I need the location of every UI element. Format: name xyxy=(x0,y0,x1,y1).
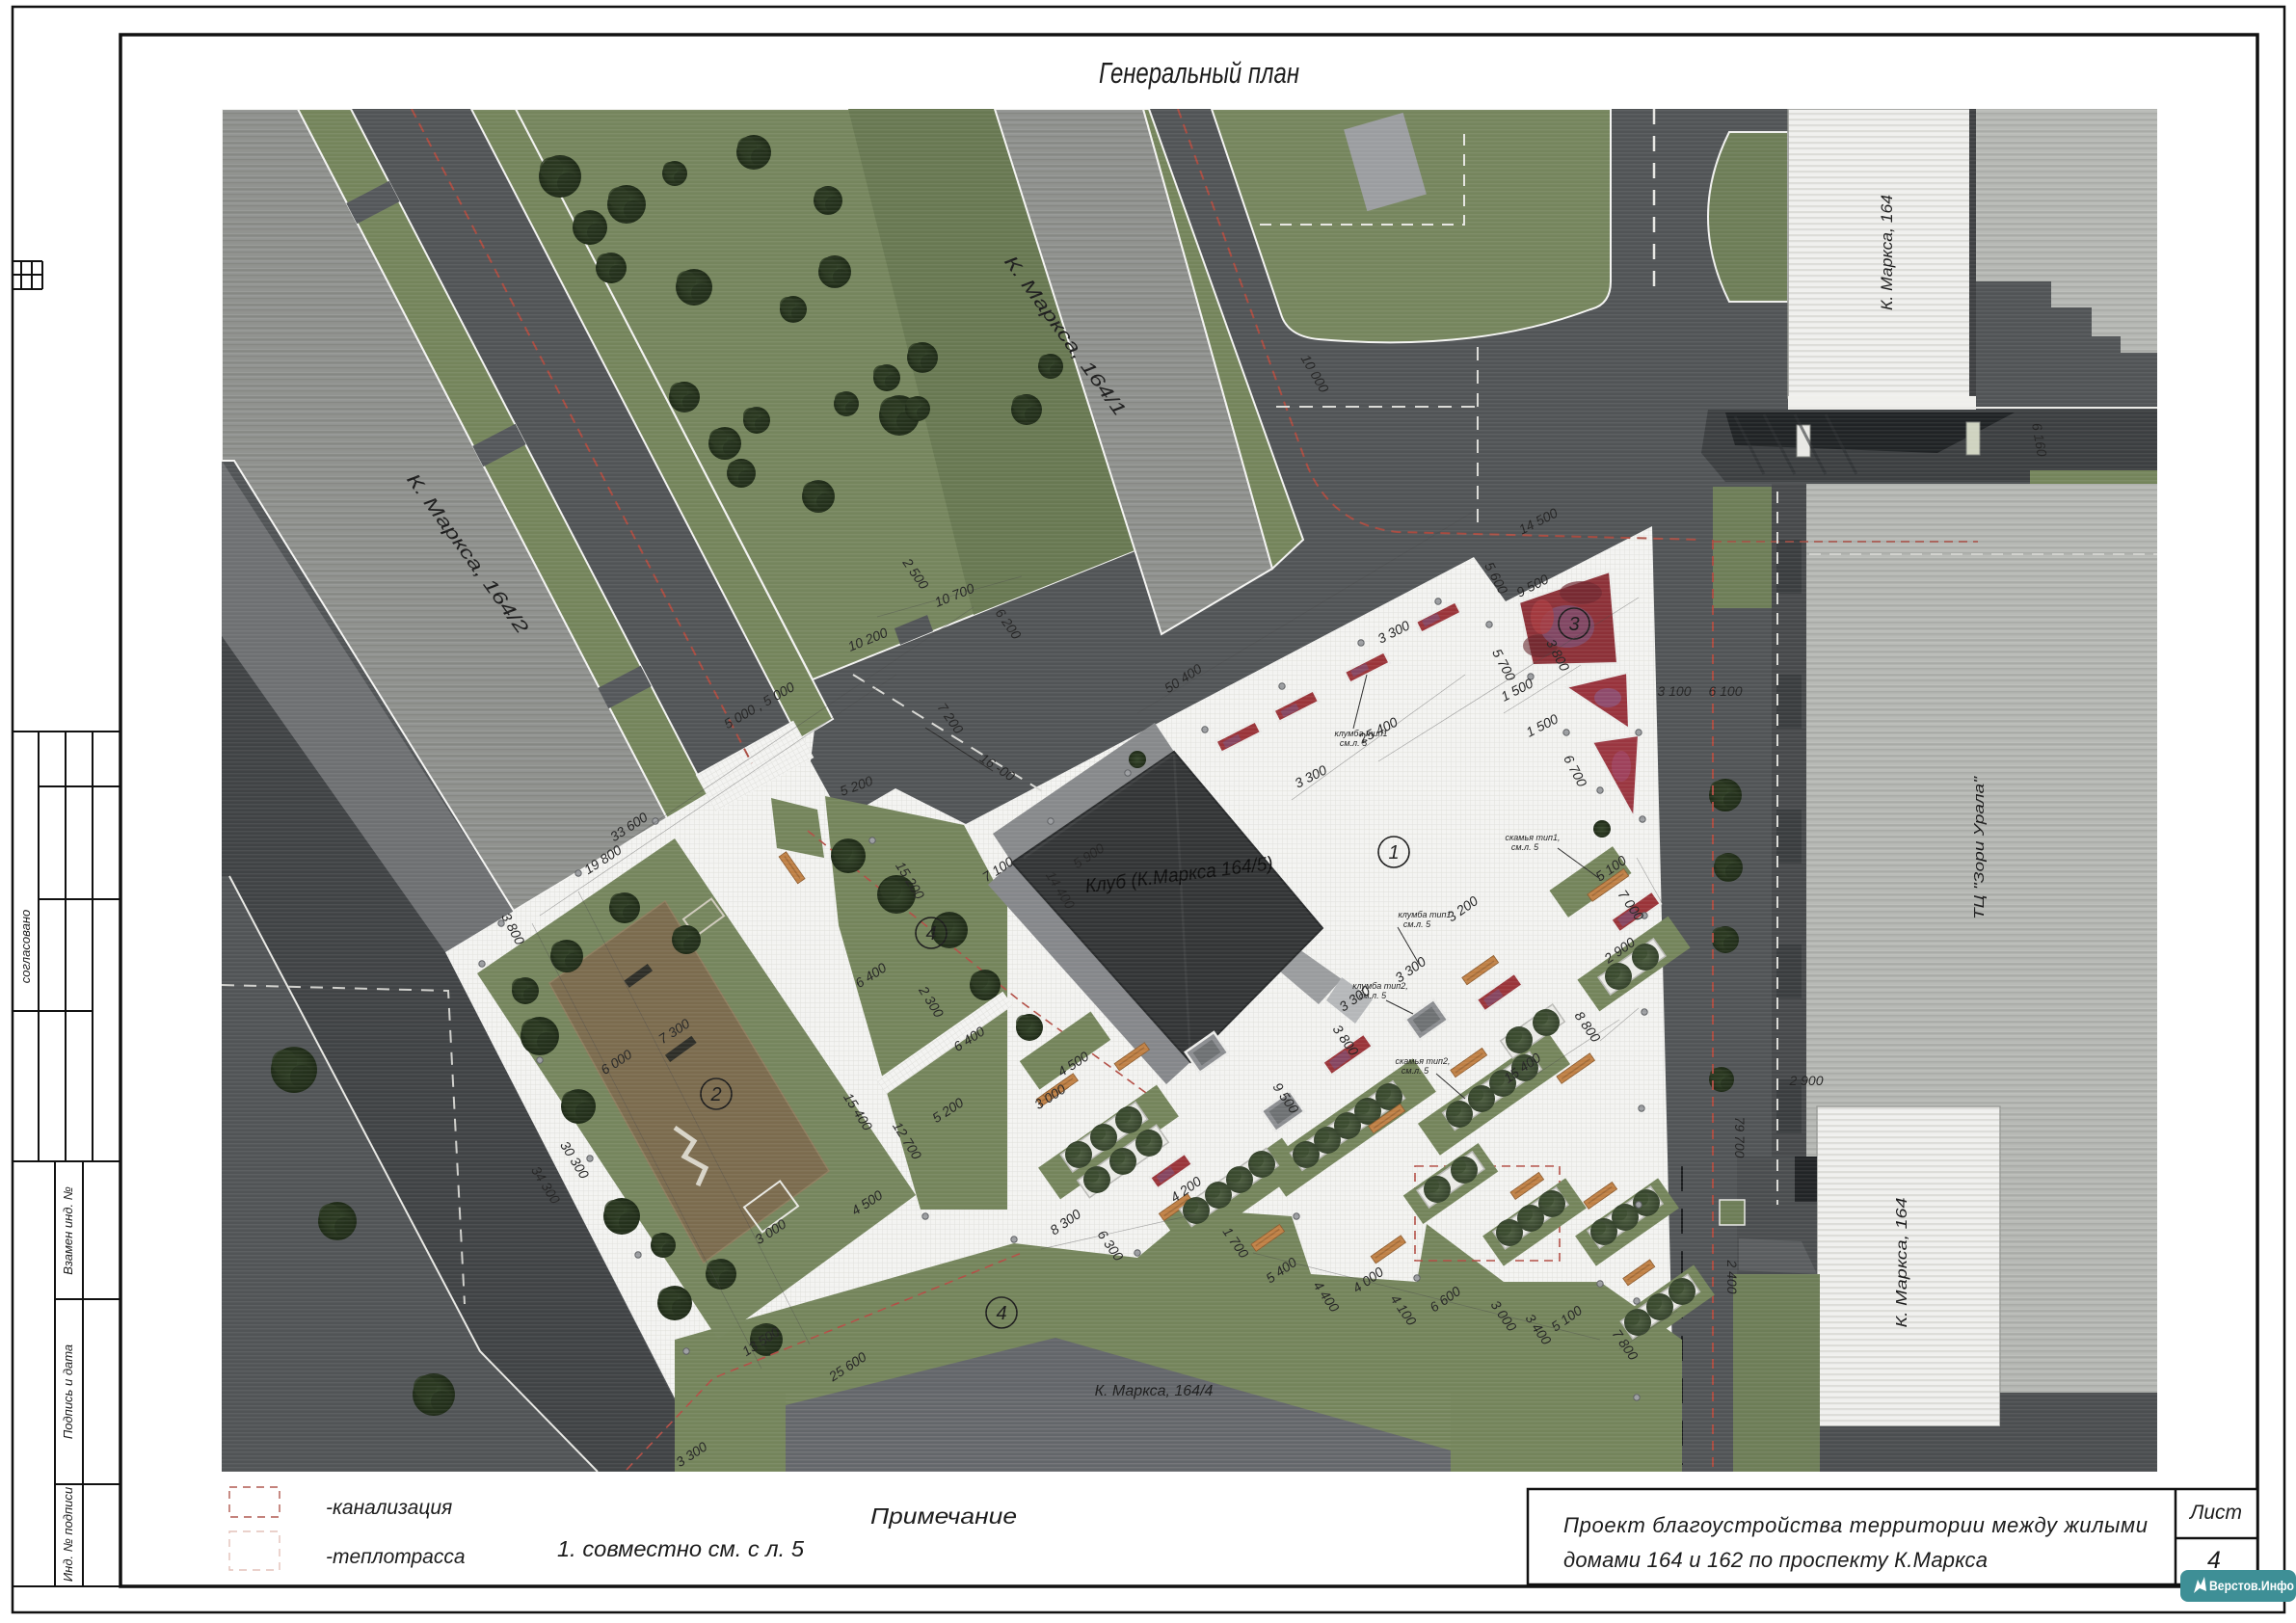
svg-text:Верстов.Инфо: Верстов.Инфо xyxy=(2209,1578,2294,1593)
svg-text:4: 4 xyxy=(2207,1547,2221,1574)
svg-text:Лист: Лист xyxy=(2188,1502,2242,1524)
svg-text:1. совместно см. с л. 5: 1. совместно см. с л. 5 xyxy=(557,1536,804,1561)
svg-text:Примечание: Примечание xyxy=(870,1503,1017,1529)
svg-text:-канализация: -канализация xyxy=(326,1497,452,1519)
svg-text:согласовано: согласовано xyxy=(18,910,33,983)
svg-text:Подпись и дата: Подпись и дата xyxy=(61,1344,75,1439)
svg-text:Проект благоустройства терри: Проект благоустройства территории между … xyxy=(1563,1513,2148,1537)
svg-text:Инд. № подписи: Инд. № подписи xyxy=(61,1487,75,1582)
svg-text:домами 164 и 162 по проспекту: домами 164 и 162 по проспекту К.Маркса xyxy=(1563,1548,1988,1572)
svg-text:Взамен инд. №: Взамен инд. № xyxy=(61,1186,75,1275)
svg-text:Генеральный план: Генеральный план xyxy=(1099,56,1299,90)
svg-text:-теплотрасса: -теплотрасса xyxy=(326,1546,466,1568)
